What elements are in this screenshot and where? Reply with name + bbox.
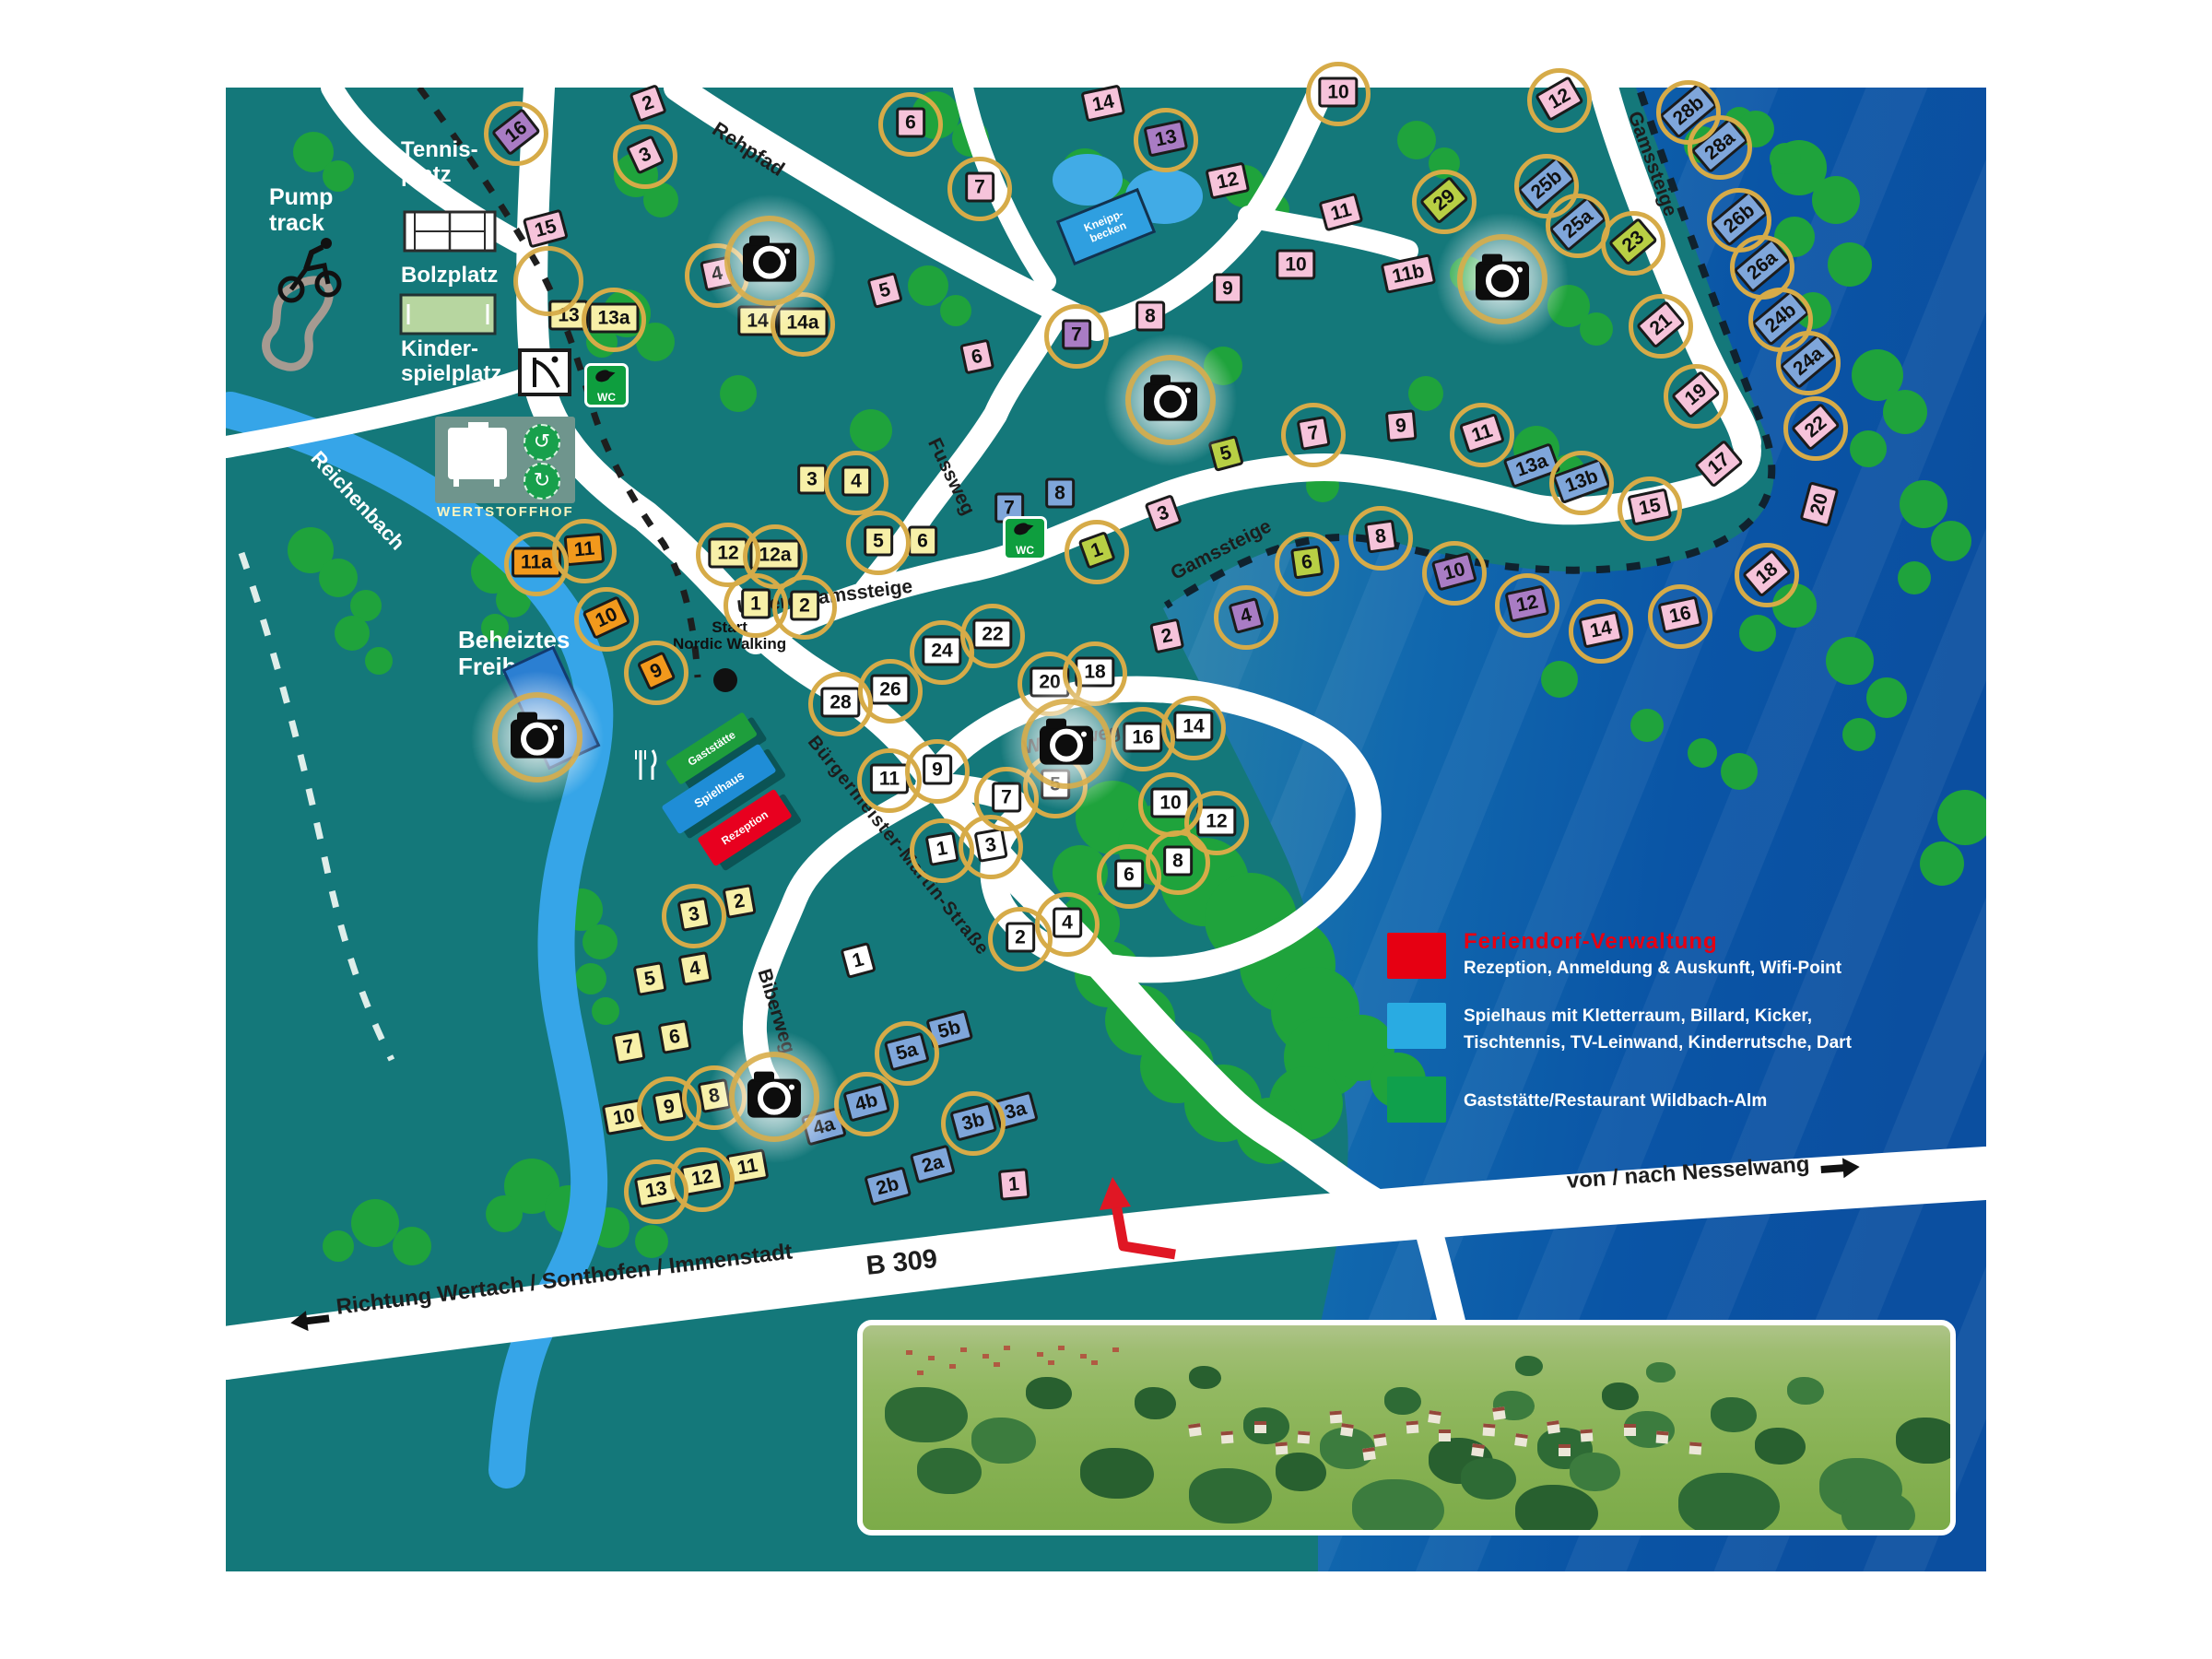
legend-spielhaus-desc-1: Spielhaus mit Kletterraum, Billard, Kick…: [1464, 1006, 1812, 1027]
legend-swatch-spielhaus: [1387, 1003, 1446, 1049]
recycle-icon: ↻: [524, 463, 560, 500]
bolzplatz-field-icon: [399, 293, 497, 335]
plot-marker-4: 4: [841, 466, 871, 497]
legend-reception-desc: Rezeption, Anmeldung & Auskunft, Wifi-Po…: [1464, 959, 1841, 979]
plot-marker-28: 28: [820, 688, 860, 718]
plot-marker-3: 3: [677, 897, 712, 932]
plot-marker-5: 5: [864, 526, 893, 557]
webcam-icon: [700, 192, 839, 330]
photo-tree: [1189, 1468, 1272, 1524]
campsite-map: { "labels": { "pump_track": "Pump\ntrack…: [0, 0, 2212, 1659]
plot-marker-8: 8: [1364, 519, 1397, 553]
start-nordic-walking-label: Start Nordic Walking: [673, 619, 786, 653]
nordic-walking-dot: [713, 668, 737, 692]
photo-distant-village: [1048, 1360, 1054, 1365]
plot-marker-3: 3: [974, 828, 1008, 863]
legend-swatch-restaurant: [1387, 1077, 1446, 1123]
plot-marker-6: 6: [908, 526, 937, 557]
photo-tree: [1384, 1387, 1421, 1415]
photo-tree: [1570, 1453, 1620, 1491]
playground-icon: [518, 348, 571, 396]
photo-distant-village: [928, 1356, 935, 1360]
plot-marker-4: 4: [1053, 908, 1082, 938]
plot-marker-8: 8: [1163, 846, 1193, 877]
plot-marker-12: 12: [708, 538, 747, 569]
photo-distant-village: [1080, 1354, 1087, 1359]
plot-marker-7: 7: [612, 1030, 646, 1065]
webcam-icon: [997, 675, 1135, 813]
plot-marker-10: 10: [1276, 250, 1315, 280]
photo-distant-village: [960, 1347, 967, 1352]
photo-tree: [1243, 1407, 1289, 1444]
plot-marker-9: 9: [1385, 409, 1417, 442]
plot-marker-2: 2: [1149, 618, 1184, 654]
kinderspielplatz-label: Kinder- spielplatz: [401, 337, 501, 387]
photo-tree: [1189, 1366, 1221, 1389]
photo-house: [1362, 1447, 1376, 1461]
photo-tree: [1352, 1479, 1444, 1536]
plot-marker-12a: 12a: [749, 540, 800, 571]
pump-track-label: Pump track: [269, 184, 333, 236]
photo-house: [1373, 1433, 1387, 1447]
plot-marker-1: 1: [925, 831, 959, 866]
photo-house: [1514, 1433, 1528, 1447]
photo-tree: [1461, 1458, 1516, 1500]
plot-marker-9: 9: [923, 755, 952, 785]
plot-marker-10: 10: [1150, 788, 1190, 818]
photo-tree: [971, 1418, 1036, 1464]
photo-house: [1221, 1431, 1234, 1444]
plot-marker-11: 11: [564, 533, 606, 567]
photo-distant-village: [994, 1362, 1000, 1367]
photo-house: [1580, 1430, 1593, 1442]
photo-tree: [1711, 1397, 1757, 1432]
plot-marker-13a: 13a: [588, 303, 639, 334]
photo-house: [1406, 1421, 1419, 1434]
plot-marker-5: 5: [633, 961, 667, 996]
tennis-court-icon: [403, 210, 497, 253]
tennisplatz-label: Tennis- platz: [401, 138, 478, 188]
village-photo: [857, 1320, 1956, 1535]
photo-house: [1428, 1410, 1441, 1424]
photo-house: [1188, 1423, 1202, 1437]
photo-tree: [917, 1448, 982, 1494]
plot-marker-10: 10: [1318, 77, 1358, 108]
plot-marker-7: 7: [965, 172, 994, 203]
legend-title: Feriendorf-Verwaltung: [1464, 929, 1718, 955]
legend-restaurant-desc: Gaststätte/Restaurant Wildbach-Alm: [1464, 1091, 1767, 1112]
photo-distant-village: [1037, 1352, 1043, 1357]
webcam-icon: [1433, 210, 1571, 348]
photo-house: [1330, 1411, 1343, 1424]
plot-marker-9: 9: [1213, 274, 1242, 304]
plot-marker-4: 4: [678, 951, 712, 986]
bolzplatz-label: Bolzplatz: [401, 264, 498, 288]
photo-house: [1656, 1431, 1669, 1444]
photo-tree: [1135, 1387, 1176, 1419]
photo-house: [1547, 1420, 1561, 1434]
webcam-icon: [1101, 331, 1240, 469]
photo-house: [1254, 1421, 1266, 1433]
photo-distant-village: [1112, 1347, 1119, 1352]
recycle-icon: ↺: [524, 424, 560, 461]
plot-marker-11: 11: [870, 764, 909, 794]
plot-marker-3: 3: [797, 465, 827, 495]
plot-marker-6: 6: [658, 1019, 692, 1054]
photo-tree: [1515, 1356, 1543, 1376]
plot-marker-13: 13: [548, 300, 588, 331]
photo-tree: [1080, 1448, 1154, 1499]
webcam-icon: [468, 668, 606, 806]
photo-distant-village: [982, 1354, 989, 1359]
plot-marker-6: 6: [1114, 860, 1144, 890]
legend-spielhaus-desc-2: Tischtennis, TV-Leinwand, Kinderrutsche,…: [1464, 1033, 1852, 1053]
plot-marker-6: 6: [1290, 545, 1324, 579]
plot-marker-26: 26: [870, 675, 910, 705]
wc-icon: WC: [584, 363, 629, 407]
photo-distant-village: [906, 1350, 912, 1355]
photo-distant-village: [1091, 1360, 1098, 1365]
plot-marker-12: 12: [1196, 806, 1236, 837]
plot-marker-24: 24: [922, 636, 961, 666]
photo-house: [1493, 1406, 1507, 1420]
wertstoffhof-label: WERTSTOFFHOF: [437, 505, 574, 521]
plot-marker-8: 8: [1135, 301, 1165, 332]
webcam-icon: [705, 1028, 843, 1166]
photo-tree: [1841, 1489, 1915, 1535]
photo-house: [1439, 1430, 1451, 1441]
photo-tree: [1276, 1453, 1326, 1491]
photo-tree: [885, 1387, 968, 1442]
plot-marker-2: 2: [1006, 923, 1035, 953]
container-icon: [448, 428, 507, 479]
photo-house: [1559, 1444, 1571, 1456]
plot-marker-1: 1: [998, 1168, 1030, 1201]
plot-marker-6: 6: [959, 339, 994, 375]
wertstoffhof-panel: ↺ ↻: [435, 417, 575, 503]
plot-marker-1: 1: [741, 589, 771, 619]
photo-tree: [1787, 1377, 1824, 1405]
restaurant-icon: [634, 748, 658, 782]
plot-marker-7: 7: [1062, 320, 1091, 350]
photo-tree: [1896, 1418, 1956, 1464]
photo-tree: [1755, 1428, 1806, 1465]
plot-marker-9: 9: [653, 1089, 687, 1124]
legend-swatch-reception: [1387, 933, 1446, 979]
plot-marker-22: 22: [972, 619, 1012, 650]
plot-marker-11a: 11a: [512, 547, 561, 578]
photo-tree: [1515, 1485, 1598, 1535]
photo-house: [1688, 1441, 1701, 1454]
photo-tree: [1678, 1473, 1780, 1535]
photo-tree: [1646, 1362, 1676, 1382]
photo-distant-village: [949, 1364, 956, 1369]
plot-marker-2: 2: [790, 591, 819, 621]
photo-house: [1276, 1441, 1288, 1454]
photo-house: [1624, 1424, 1636, 1436]
photo-house: [1340, 1423, 1354, 1437]
plot-marker-8: 8: [1045, 478, 1075, 509]
plot-marker-2: 2: [723, 884, 757, 919]
cyclist-icon: [275, 238, 345, 304]
photo-distant-village: [917, 1371, 924, 1375]
plot-marker-7: 7: [1297, 416, 1331, 451]
wc-icon: WC: [1003, 516, 1047, 560]
photo-house: [1298, 1431, 1311, 1444]
plot-marker-14: 14: [1173, 712, 1213, 742]
photo-tree: [1026, 1377, 1072, 1409]
photo-tree: [1602, 1382, 1639, 1410]
photo-house: [1471, 1443, 1485, 1457]
plot-marker-6: 6: [896, 108, 925, 138]
photo-distant-village: [1058, 1346, 1065, 1350]
photo-distant-village: [1004, 1346, 1010, 1350]
photo-house: [1482, 1423, 1495, 1436]
